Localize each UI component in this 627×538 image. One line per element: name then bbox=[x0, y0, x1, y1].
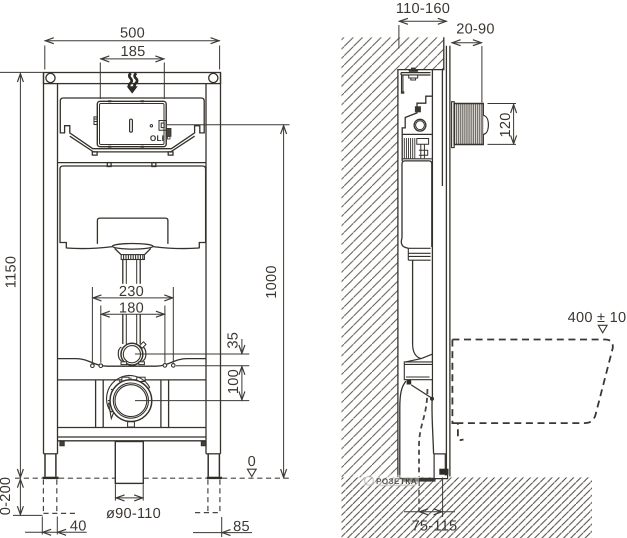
svg-text:100: 100 bbox=[226, 369, 242, 394]
svg-text:75-115: 75-115 bbox=[412, 519, 458, 535]
svg-text:120: 120 bbox=[498, 112, 514, 137]
svg-text:0: 0 bbox=[248, 454, 256, 470]
svg-text:OLI: OLI bbox=[150, 134, 164, 143]
svg-text:500: 500 bbox=[120, 26, 145, 42]
svg-text:400 ± 10: 400 ± 10 bbox=[568, 310, 627, 326]
svg-text:35: 35 bbox=[225, 332, 241, 349]
svg-text:1000: 1000 bbox=[264, 265, 280, 298]
svg-text:185: 185 bbox=[120, 44, 145, 60]
svg-text:85: 85 bbox=[233, 519, 250, 535]
svg-text:ø90-110: ø90-110 bbox=[106, 506, 161, 522]
svg-text:20-90: 20-90 bbox=[456, 22, 495, 38]
svg-text:РОЗЕТКА: РОЗЕТКА bbox=[376, 477, 417, 486]
svg-text:110-160: 110-160 bbox=[396, 1, 450, 17]
svg-text:40: 40 bbox=[70, 519, 87, 535]
svg-text:230: 230 bbox=[119, 284, 144, 300]
svg-text:0-200: 0-200 bbox=[0, 477, 14, 516]
svg-text:1150: 1150 bbox=[4, 256, 20, 288]
svg-text:180: 180 bbox=[119, 301, 144, 317]
